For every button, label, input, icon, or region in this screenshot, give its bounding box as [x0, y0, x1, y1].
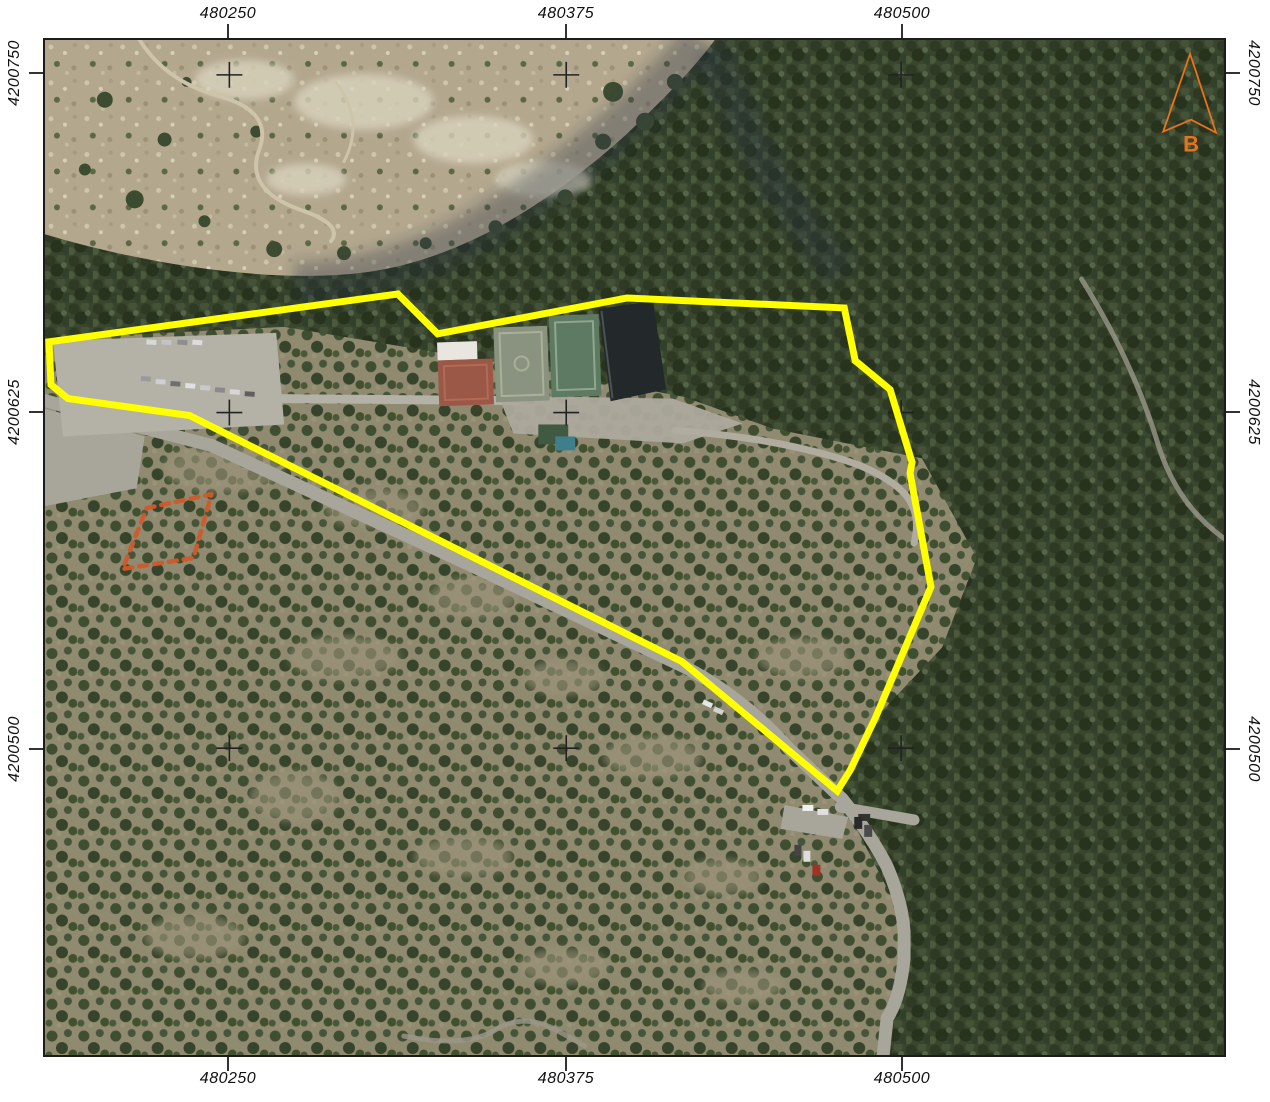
grid-tick-right — [1226, 411, 1240, 413]
easting-label-top-1: 480250 — [200, 5, 256, 23]
easting-label-bottom-2: 480375 — [538, 1070, 594, 1088]
grid-tick-top — [565, 24, 567, 38]
grid-tick-left — [29, 72, 43, 74]
easting-label-top-3: 480500 — [874, 5, 930, 23]
map-canvas: B — [45, 40, 1224, 1055]
aerial-imagery — [45, 40, 1224, 1055]
grid-tick-left — [29, 411, 43, 413]
grid-tick-left — [29, 748, 43, 750]
northing-label-right-3: 4200500 — [1244, 716, 1262, 782]
grid-tick-right — [1226, 748, 1240, 750]
northing-label-left-3: 4200500 — [6, 716, 24, 782]
grid-tick-top — [901, 24, 903, 38]
grid-tick-bottom — [227, 1057, 229, 1071]
easting-label-bottom-1: 480250 — [200, 1070, 256, 1088]
grid-tick-right — [1226, 72, 1240, 74]
map-frame: B — [43, 38, 1226, 1057]
pool — [555, 436, 575, 450]
map-export-page: 480250 480375 480500 480250 480375 48050… — [0, 0, 1270, 1102]
easting-label-top-2: 480375 — [538, 5, 594, 23]
northing-label-left-2: 4200625 — [6, 379, 24, 445]
north-arrow-label: B — [1183, 132, 1199, 157]
northing-label-left-1: 4200750 — [6, 40, 24, 106]
parking-lot — [53, 333, 284, 437]
northing-label-right-1: 4200750 — [1244, 40, 1262, 106]
northing-label-right-2: 4200625 — [1244, 379, 1262, 445]
easting-label-bottom-3: 480500 — [874, 1070, 930, 1088]
white-building — [437, 341, 477, 360]
grid-tick-bottom — [901, 1057, 903, 1071]
grid-tick-top — [227, 24, 229, 38]
grid-tick-bottom — [565, 1057, 567, 1071]
